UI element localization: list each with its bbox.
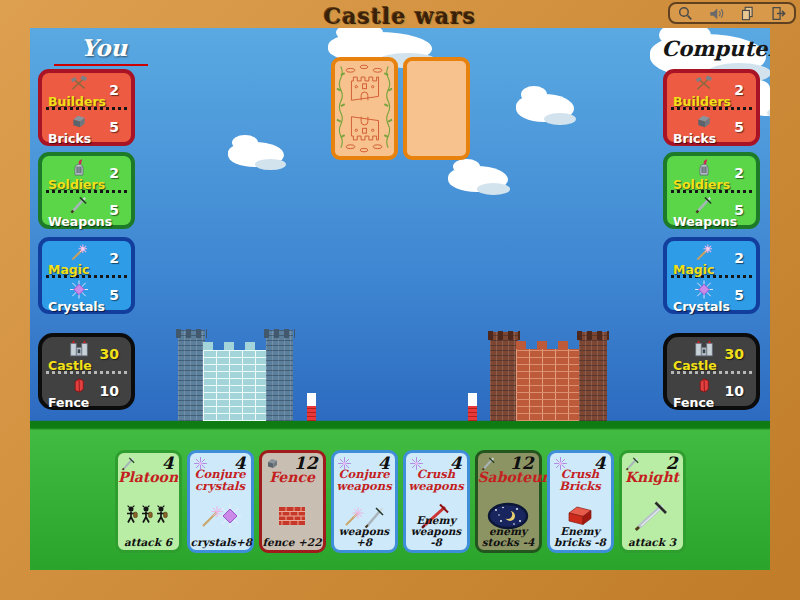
you-builders-panel: 2 Builders 5 Bricks (38, 69, 135, 146)
you-header: You (48, 34, 160, 61)
you-castle-wall (203, 350, 268, 421)
card-effect: weapons +8 (335, 526, 394, 548)
magnifier-icon[interactable] (674, 4, 698, 22)
you-magic-panel: 2 Magic 5 Crystals (38, 237, 135, 314)
card-platoon[interactable]: 4 Platoon attack 6 (115, 450, 182, 553)
helmet-icon (68, 158, 90, 177)
card-effect: fence +22 (263, 537, 322, 548)
computer-magic-value: 2 (734, 250, 744, 266)
crystal-icon (68, 280, 90, 299)
computer-weapons-label: Weapons (673, 214, 737, 229)
you-builders-label: Builders (48, 94, 106, 109)
computer-builders-value: 2 (734, 82, 744, 98)
builders-icon (693, 75, 715, 94)
you-castle-tower (178, 330, 205, 421)
computer-magic-label: Magic (673, 262, 715, 277)
computer-fence-post (468, 393, 477, 421)
deck-card-back[interactable] (331, 57, 398, 160)
computer-bricks-value: 5 (734, 119, 744, 135)
you-fence-post (307, 393, 316, 421)
computer-soldiers-panel: 2 Soldiers 5 Weapons (663, 152, 760, 229)
you-crystals-label: Crystals (48, 299, 105, 314)
exit-icon[interactable] (767, 4, 791, 22)
you-castle-value: 30 (100, 346, 119, 362)
computer-castle-tower (579, 332, 607, 421)
computer-castle-panel: 30 Castle 10 Fence (663, 333, 760, 410)
crystal-icon (693, 280, 715, 299)
helmet-icon (693, 158, 715, 177)
card-cost: 4 (378, 453, 390, 473)
card-cost: 4 (234, 453, 246, 473)
wand-icon (68, 243, 90, 262)
discard-pile-slot[interactable] (403, 57, 470, 160)
you-castle-panel: 30 Castle 10 Fence (38, 333, 135, 410)
you-fence-value: 10 (100, 383, 119, 399)
you-soldiers-value: 2 (109, 165, 119, 181)
brick-wall-art (262, 498, 323, 534)
sword-icon (481, 456, 496, 471)
soldiers-art (118, 498, 179, 534)
card-effect: crystals+8 (191, 537, 250, 548)
computer-builders-panel: 2 Builders 5 Bricks (663, 69, 760, 146)
you-soldiers-label: Soldiers (48, 177, 105, 192)
computer-soldiers-label: Soldiers (673, 177, 730, 192)
card-cost: 12 (510, 453, 534, 473)
card-cost: 12 (294, 453, 318, 473)
computer-fence-value: 10 (725, 383, 744, 399)
cloud (448, 166, 508, 192)
computer-builders-label: Builders (673, 94, 731, 109)
card-effect: enemy stocks -4 (479, 526, 538, 548)
sword-icon (68, 195, 90, 214)
card-conjure-crystals[interactable]: 4 Conjure crystals crystals+8 (187, 450, 254, 553)
bricks-icon (693, 112, 715, 131)
you-castle-label: Castle (48, 358, 92, 373)
sparkle-icon (337, 456, 352, 471)
you-bricks-label: Bricks (48, 131, 91, 146)
you-magic-value: 2 (109, 250, 119, 266)
card-hand: 4 Platoon attack 6 4 Conjure crystals cr… (30, 450, 770, 553)
computer-crystals-value: 5 (734, 287, 744, 303)
fence-icon (693, 376, 715, 395)
you-bricks-value: 5 (109, 119, 119, 135)
computer-header: Computer (658, 36, 770, 61)
big-sword-art (622, 498, 683, 534)
computer-castle-label: Castle (673, 358, 717, 373)
computer-crystals-label: Crystals (673, 299, 730, 314)
card-crush-weapons[interactable]: 4 Crush weapons Enemy weapons -8 (403, 450, 470, 553)
sparkle-icon (409, 456, 424, 471)
computer-castle-wall (516, 349, 581, 421)
computer-magic-panel: 2 Magic 5 Crystals (663, 237, 760, 314)
game-area: You Computer 2 Builders 5 Bricks 2 Soldi… (30, 28, 770, 570)
castle-wars-game: Castle wars You Computer 2 Builders (0, 0, 800, 600)
you-builders-value: 2 (109, 82, 119, 98)
you-weapons-label: Weapons (48, 214, 112, 229)
computer-castle-tower (490, 332, 518, 421)
castle-icon (68, 339, 90, 358)
bricks-icon (68, 112, 90, 131)
you-crystals-value: 5 (109, 287, 119, 303)
castle-icon (693, 339, 715, 358)
builders-icon (68, 75, 90, 94)
cloud (228, 142, 284, 167)
computer-castle-value: 30 (725, 346, 744, 362)
sword-icon (121, 456, 136, 471)
card-fence[interactable]: 12 Fence fence +22 (259, 450, 326, 553)
card-cost: 4 (594, 453, 606, 473)
card-effect: attack 6 (119, 537, 178, 548)
sound-icon[interactable] (705, 4, 729, 22)
sword-icon (625, 456, 640, 471)
cloud (516, 94, 574, 122)
card-crush-bricks[interactable]: 4 Crush Bricks Enemy bricks -8 (547, 450, 614, 553)
you-magic-label: Magic (48, 262, 90, 277)
card-effect: attack 3 (623, 537, 682, 548)
sparkle-icon (553, 456, 568, 471)
you-underline (54, 64, 148, 66)
you-fence-label: Fence (48, 395, 89, 410)
pages-icon[interactable] (736, 4, 760, 22)
fence-icon (68, 376, 90, 395)
you-soldiers-panel: 2 Soldiers 5 Weapons (38, 152, 135, 229)
you-castle-tower (266, 330, 293, 421)
computer-fence-label: Fence (673, 395, 714, 410)
card-conjure-weapons[interactable]: 4 Conjure weapons weapons +8 (331, 450, 398, 553)
computer-soldiers-value: 2 (734, 165, 744, 181)
wand-crystal-art (190, 498, 251, 534)
wand-icon (693, 243, 715, 262)
card-effect: Enemy bricks -8 (551, 526, 610, 548)
card-cost: 4 (162, 453, 174, 473)
card-cost: 2 (666, 453, 678, 473)
sword-icon (693, 195, 715, 214)
brick-icon (265, 456, 280, 471)
toolbar (668, 2, 796, 24)
computer-bricks-label: Bricks (673, 131, 716, 146)
card-knight[interactable]: 2 Knight attack 3 (619, 450, 686, 553)
card-effect: Enemy weapons -8 (407, 515, 466, 548)
card-saboteur[interactable]: 12 Saboteur enemy stocks -4 (475, 450, 542, 553)
sparkle-icon (193, 456, 208, 471)
card-cost: 4 (450, 453, 462, 473)
